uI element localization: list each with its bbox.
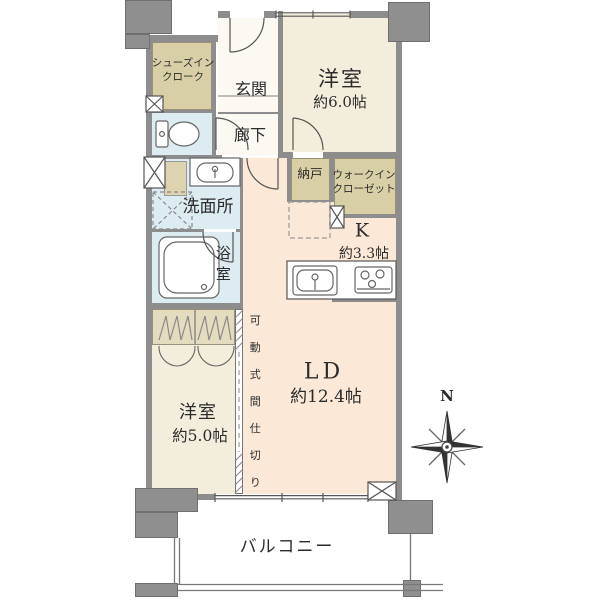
compass-rose-icon [411, 411, 483, 483]
vent-window-washroom-icon [144, 157, 165, 188]
hallway-label: 廊下 [234, 124, 266, 145]
living-name: LD [304, 357, 344, 386]
living-size: 約12.4帖 [290, 386, 362, 408]
closet-bifold-doors [159, 346, 234, 366]
bedroom6-name: 洋室 [318, 66, 364, 94]
partition-label: 可動式間仕切り [247, 315, 262, 504]
bedroom6-size: 約6.0帖 [313, 93, 367, 113]
entrance-door-arc [230, 18, 264, 52]
vent-window-sic-icon [146, 96, 163, 112]
wic-label: ウォークインクローゼット [333, 169, 396, 197]
washroom-label: 洗面所 [183, 196, 234, 218]
storage-label: 納戸 [297, 166, 322, 183]
toilet-icon [156, 121, 199, 147]
partition-hatch [235, 310, 243, 493]
wic-label-line2: クローゼット [333, 183, 396, 195]
kitchen-size: 約3.3帖 [339, 245, 389, 263]
floor-plan: シューズインクローク 玄関 廊下 洋室 約6.0帖 洗面所 浴室 納戸 ウォーク… [0, 0, 600, 600]
ld-door-arc [247, 158, 278, 189]
washroom-sink-icon [190, 158, 240, 186]
stove-icon [355, 267, 392, 293]
bedroom5-size: 約5.0帖 [172, 426, 228, 446]
bedroom5-name: 洋室 [179, 401, 217, 425]
bedroom6-door-arc [293, 118, 323, 150]
genkan-label: 玄関 [235, 78, 267, 99]
kitchen-name: K [355, 218, 369, 243]
sic-label-line2: クローク [162, 71, 204, 83]
refrigerator-space [289, 202, 330, 238]
balcony-label: バルコニー [240, 536, 335, 558]
plan-linework [0, 0, 600, 600]
sic-label: シューズインクローク [152, 57, 214, 85]
bathroom-label: 浴室 [212, 245, 232, 287]
pipe-space-ld-icon [368, 482, 396, 500]
window-top [276, 11, 350, 19]
kitchen-sink-icon [293, 266, 337, 295]
window-bottom [215, 493, 368, 502]
bathtub-icon [159, 237, 219, 298]
compass-north-label: N [440, 387, 454, 407]
sic-label-line1: シューズイン [152, 57, 214, 69]
wic-label-line1: ウォークイン [333, 169, 396, 181]
pipe-space-kitchen-icon [330, 206, 344, 228]
closet-hangers-icon [159, 310, 231, 344]
